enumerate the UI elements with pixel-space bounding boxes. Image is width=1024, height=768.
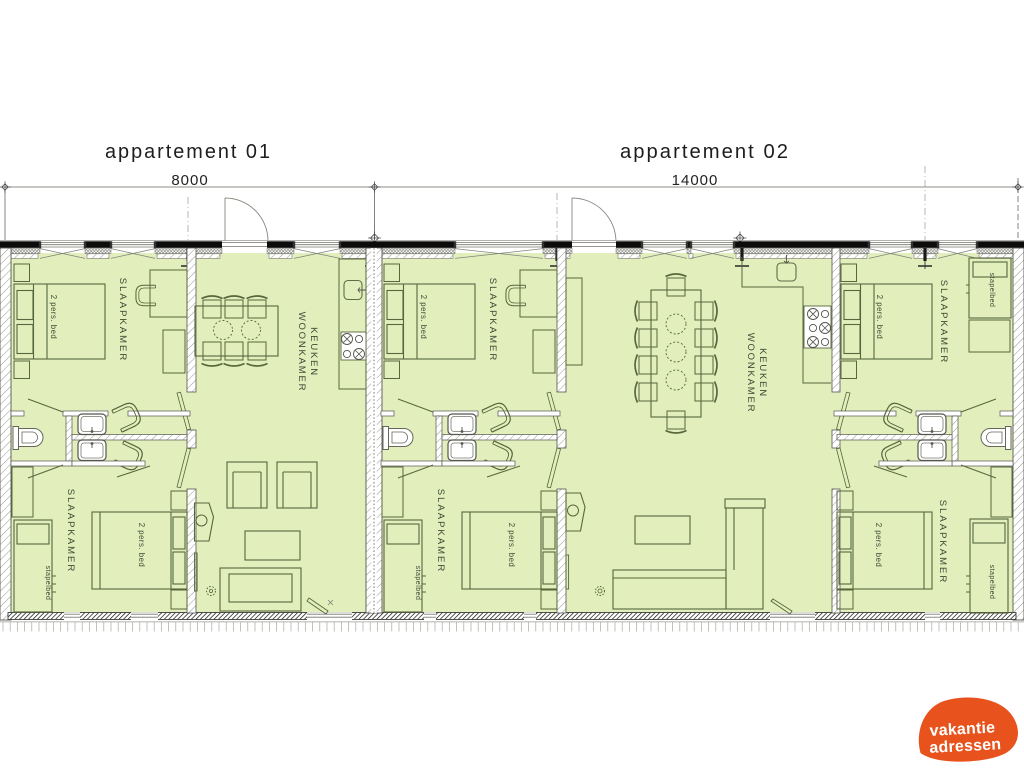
svg-text:WOONKAMER: WOONKAMER <box>296 312 307 393</box>
svg-text:WOONKAMER: WOONKAMER <box>745 333 756 414</box>
svg-text:2 pers. bed: 2 pers. bed <box>137 523 146 568</box>
svg-text:SLAAPKAMER: SLAAPKAMER <box>65 489 76 573</box>
svg-text:2 pers. bed: 2 pers. bed <box>874 523 883 568</box>
svg-text:SLAAPKAMER: SLAAPKAMER <box>937 500 948 584</box>
svg-text:2 pers. bed: 2 pers. bed <box>875 295 884 340</box>
svg-text:2 pers. bed: 2 pers. bed <box>419 295 428 340</box>
svg-text:2 pers. bed: 2 pers. bed <box>507 523 516 568</box>
svg-text:appartement 02: appartement 02 <box>620 141 790 163</box>
svg-text:SLAAPKAMER: SLAAPKAMER <box>938 280 949 364</box>
svg-text:KEUKEN: KEUKEN <box>757 348 768 398</box>
svg-text:stapelbed: stapelbed <box>988 273 995 308</box>
svg-text:appartement 01: appartement 01 <box>105 141 272 163</box>
svg-text:14000: 14000 <box>672 172 719 189</box>
svg-text:SLAAPKAMER: SLAAPKAMER <box>117 278 128 362</box>
svg-text:stapelbed: stapelbed <box>988 565 995 600</box>
svg-text:stapelbed: stapelbed <box>44 566 51 601</box>
svg-text:SLAAPKAMER: SLAAPKAMER <box>435 489 446 573</box>
svg-text:2 pers. bed: 2 pers. bed <box>49 295 58 340</box>
svg-text:KEUKEN: KEUKEN <box>308 327 319 377</box>
svg-text:8000: 8000 <box>171 172 208 189</box>
svg-text:SLAAPKAMER: SLAAPKAMER <box>487 278 498 362</box>
svg-text:stapelbed: stapelbed <box>414 566 421 601</box>
